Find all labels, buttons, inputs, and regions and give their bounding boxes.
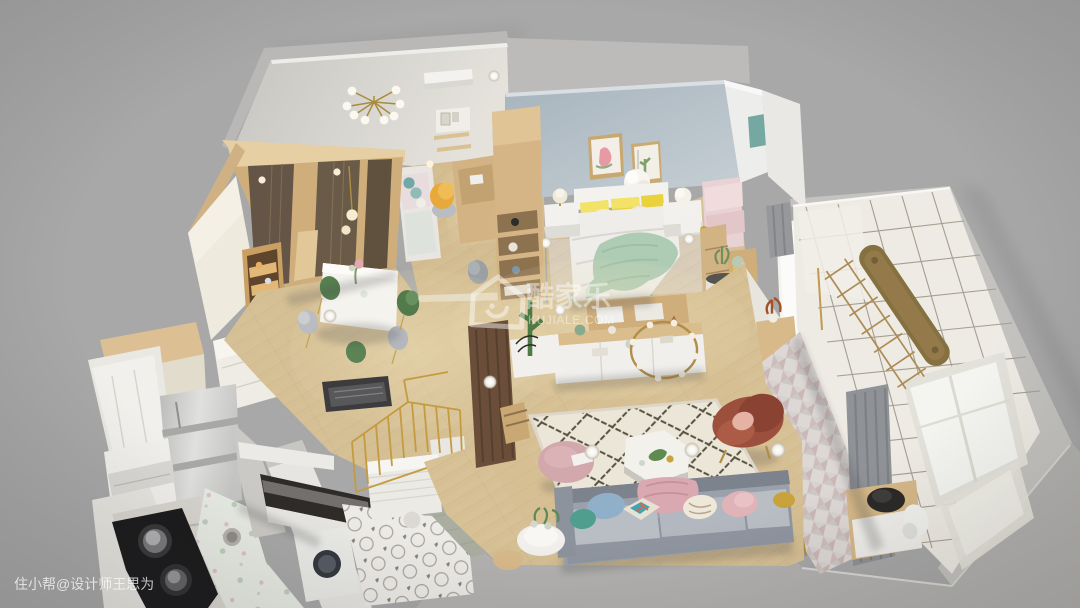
- svg-text:KUJIALE.COM: KUJIALE.COM: [528, 313, 615, 327]
- svg-text:住小帮@设计师王思为: 住小帮@设计师王思为: [14, 576, 154, 592]
- svg-text:酷家乐: 酷家乐: [526, 280, 612, 312]
